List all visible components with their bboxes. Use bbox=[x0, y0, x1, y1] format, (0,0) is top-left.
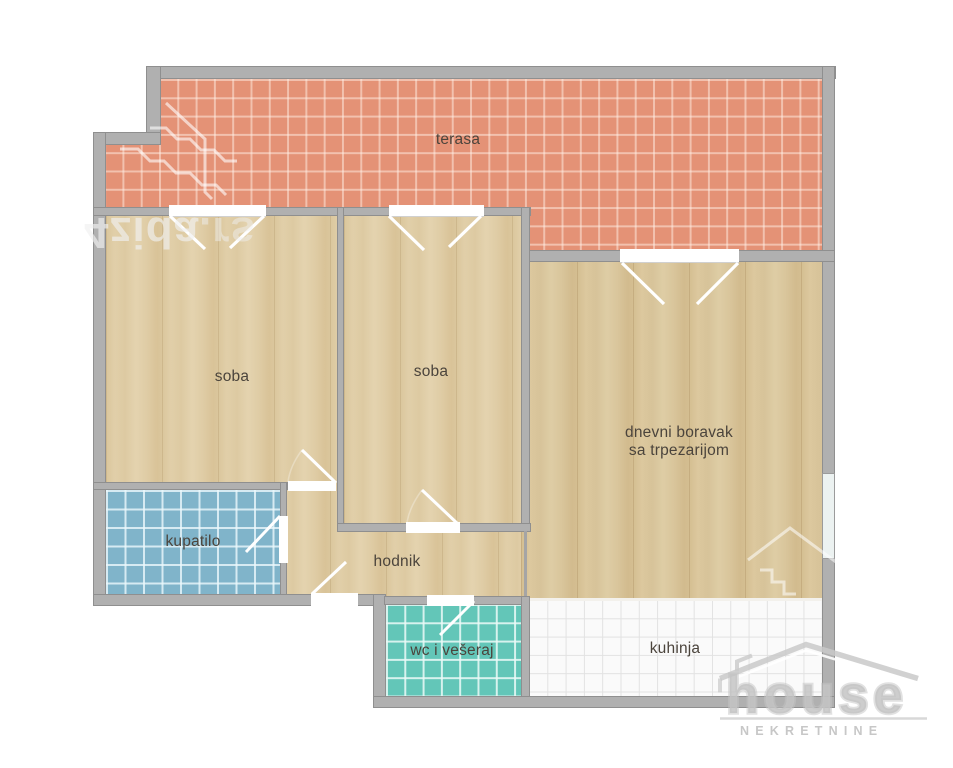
svg-text:NEKRETNINE: NEKRETNINE bbox=[740, 724, 883, 738]
svg-text:house: house bbox=[726, 665, 908, 725]
